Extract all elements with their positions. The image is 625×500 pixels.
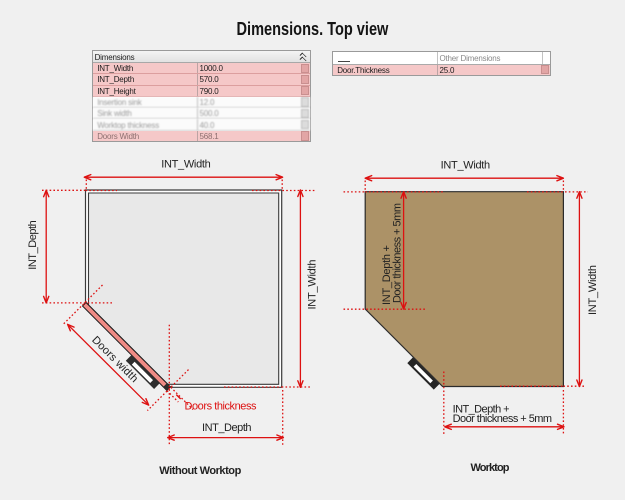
svg-text:INT_Width: INT_Width: [441, 160, 491, 172]
svg-text:Doors thickness: Doors thickness: [185, 400, 258, 412]
svg-text:INT_Width: INT_Width: [161, 159, 211, 171]
svg-text:INT_Depth: INT_Depth: [27, 220, 39, 270]
svg-text:INT_Width: INT_Width: [307, 260, 319, 310]
svg-text:Door thickness + 5mm: Door thickness + 5mm: [392, 203, 404, 303]
svg-text:INT_Width: INT_Width: [587, 265, 599, 315]
svg-text:Without Worktop: Without Worktop: [159, 465, 241, 477]
svg-text:Door thickness + 5mm: Door thickness + 5mm: [453, 413, 552, 425]
svg-text:Worktop: Worktop: [471, 462, 510, 474]
svg-text:INT_Depth: INT_Depth: [202, 422, 251, 434]
